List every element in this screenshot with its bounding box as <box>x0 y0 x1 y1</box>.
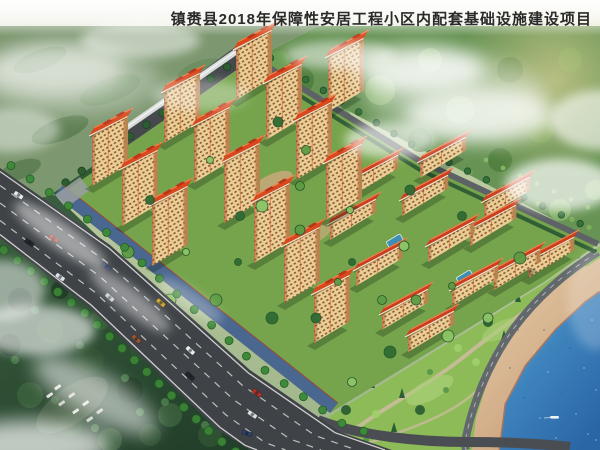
project-title: 镇赉县2018年保障性安居工程小区内配套基础设施建设项目 <box>171 8 592 29</box>
rendering-canvas: 镇赉县2018年保障性安居工程小区内配套基础设施建设项目 <box>0 0 600 450</box>
aerial-rendering <box>0 0 600 450</box>
